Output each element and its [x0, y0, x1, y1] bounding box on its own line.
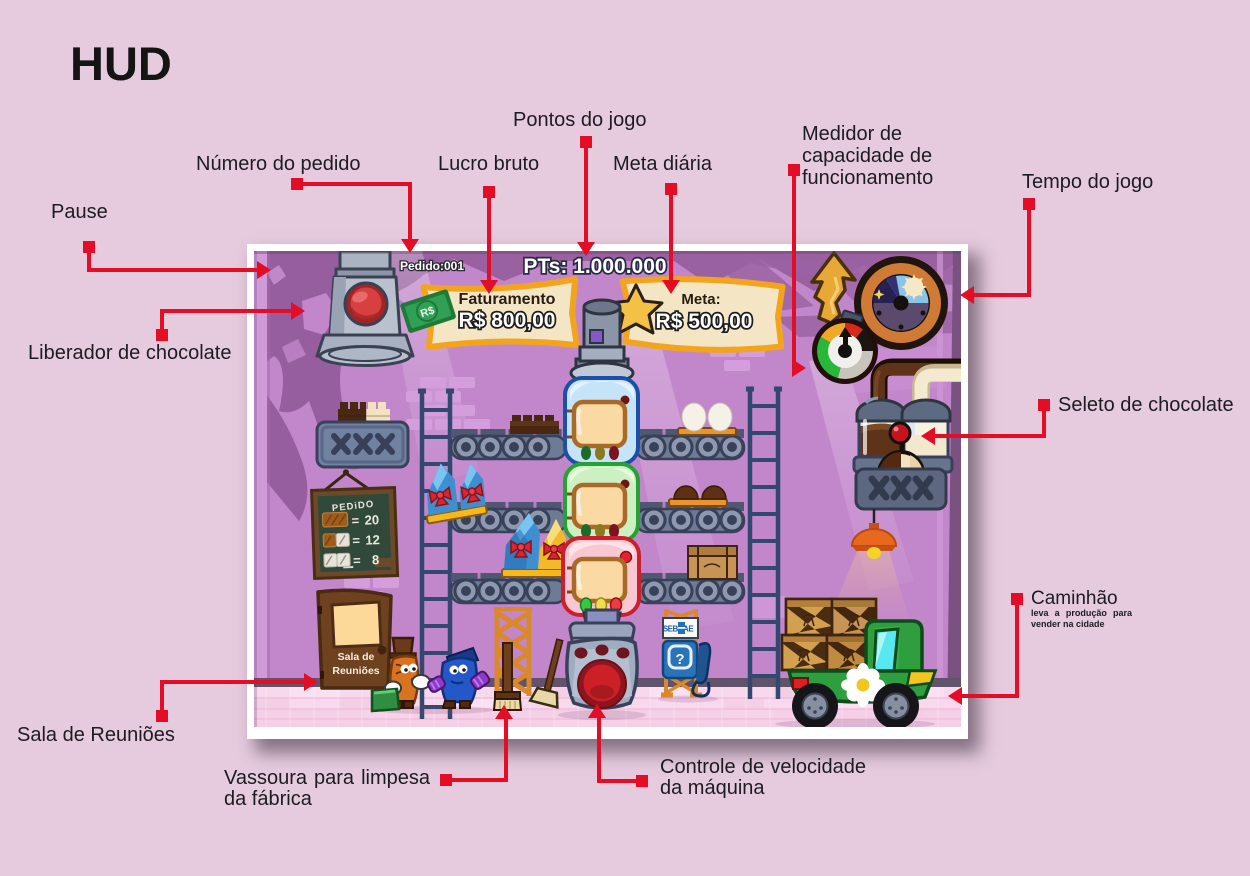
svg-text:12: 12: [365, 532, 380, 547]
svg-text:?: ?: [675, 651, 684, 668]
svg-text:PTs: 1.000.000: PTs: 1.000.000: [523, 255, 666, 278]
svg-text:20: 20: [364, 512, 379, 527]
svg-text:8: 8: [372, 552, 380, 567]
svg-text:=: =: [351, 513, 360, 528]
svg-text:=: =: [353, 553, 362, 568]
svg-text:Faturamento: Faturamento: [459, 291, 556, 308]
svg-text:R$ 500,00: R$ 500,00: [656, 310, 753, 333]
svg-text:=: =: [352, 533, 361, 548]
svg-text:Reuniões: Reuniões: [332, 665, 379, 677]
svg-text:Meta:: Meta:: [681, 291, 720, 308]
svg-text:R$ 800,00: R$ 800,00: [459, 309, 556, 332]
svg-text:Pedido:001: Pedido:001: [400, 259, 464, 273]
svg-text:Sala de: Sala de: [338, 651, 375, 663]
